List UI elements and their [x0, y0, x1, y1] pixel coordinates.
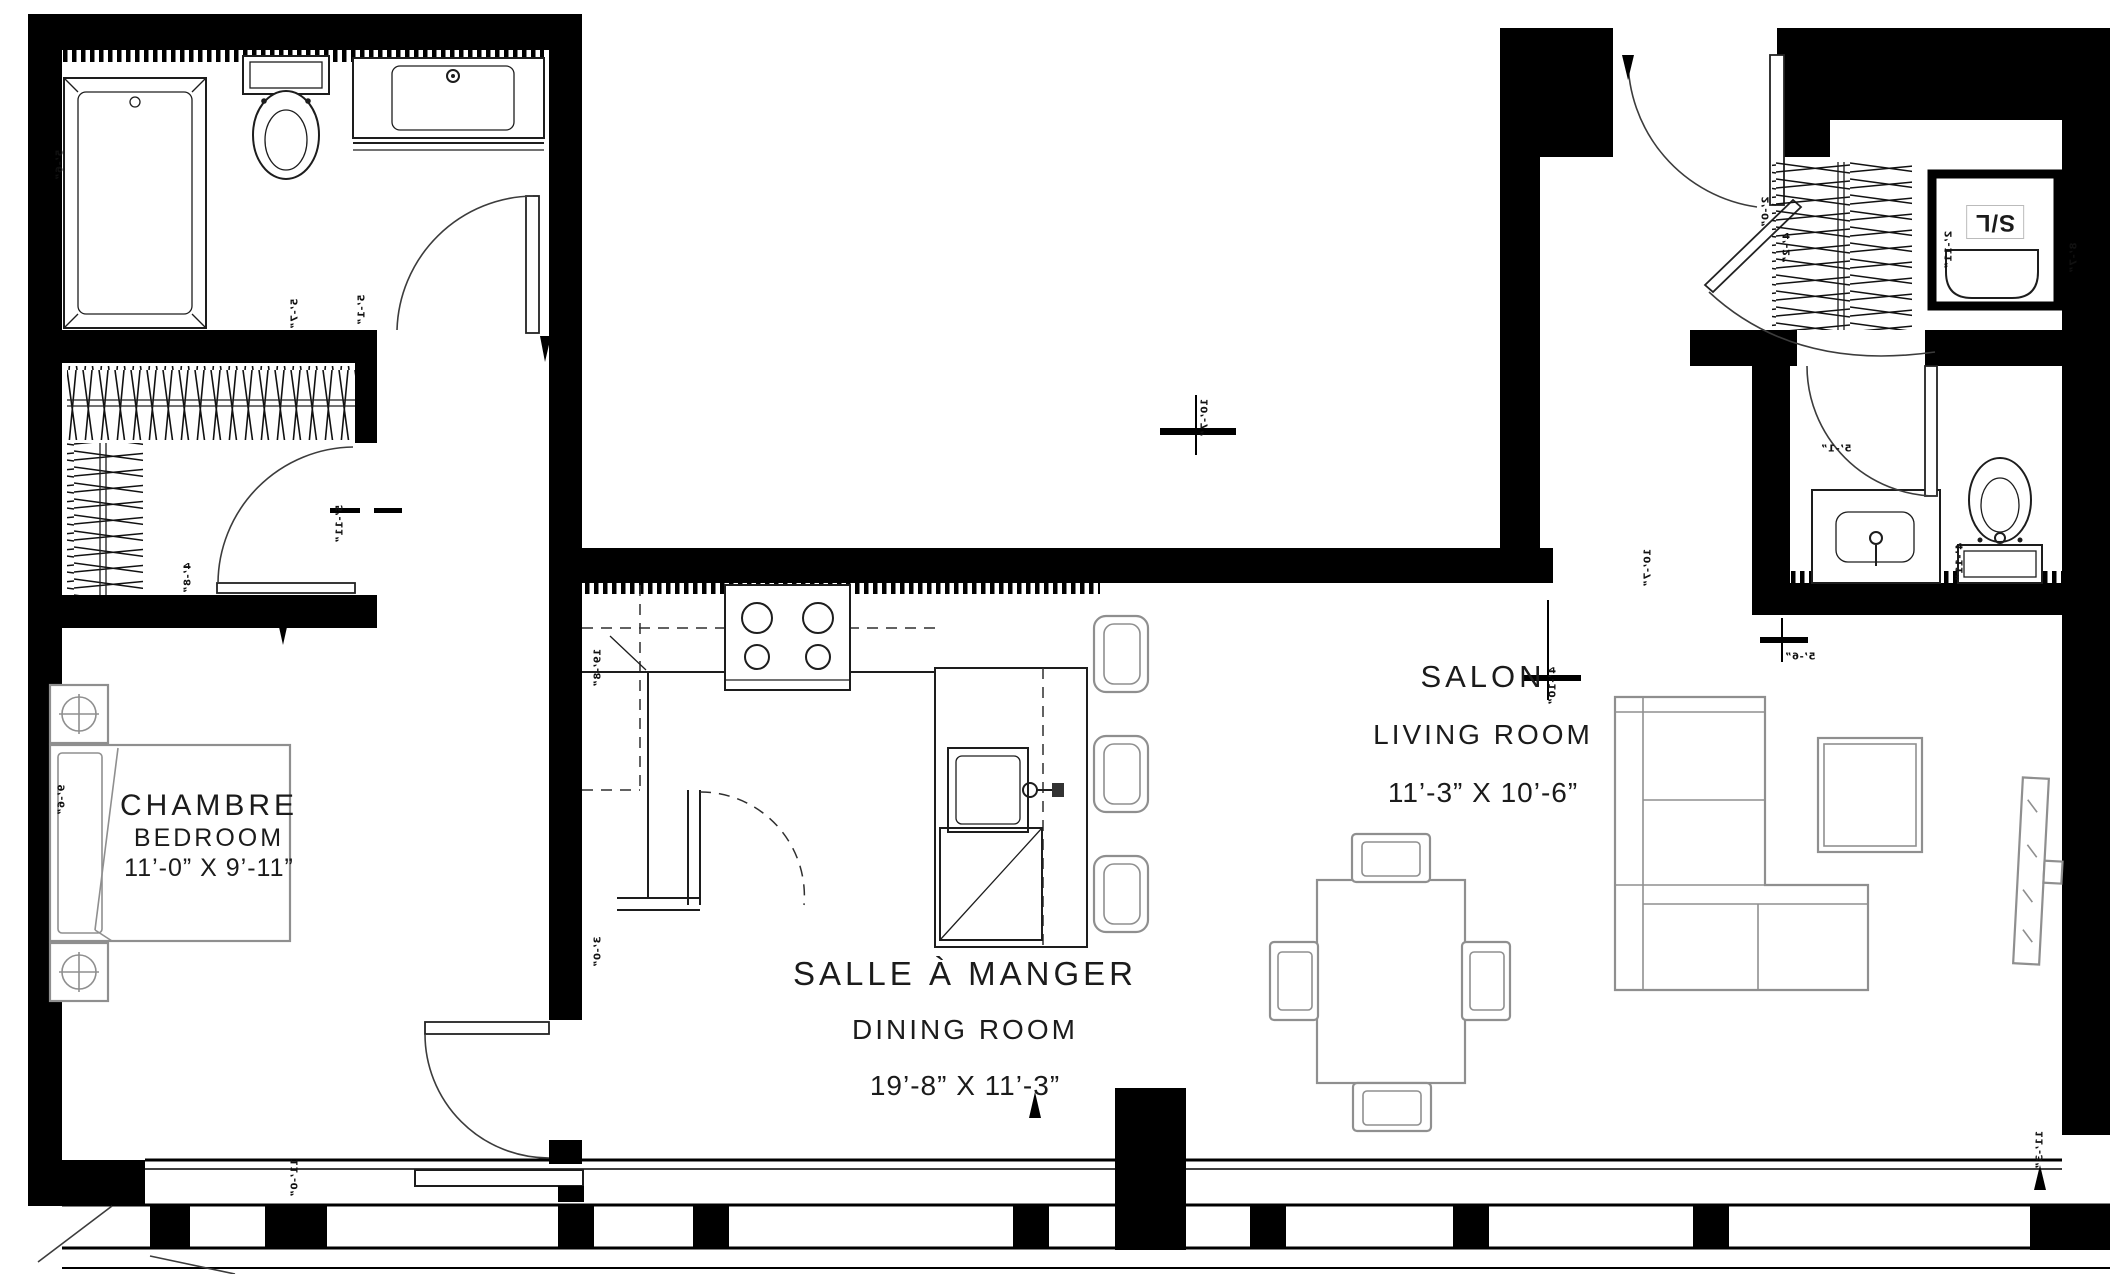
dining-set	[1270, 834, 1510, 1131]
window-wall	[38, 1160, 2110, 1274]
toilet	[1958, 458, 2042, 583]
hanger-hatch-side	[67, 443, 143, 595]
dimension-text: 11’-3”	[2035, 1131, 2046, 1169]
dimension-text: 10’-7”	[1200, 399, 1211, 437]
kitchen	[582, 583, 1148, 947]
bathroom-door	[397, 196, 539, 333]
room-label-living: SALON LIVING ROOM 11’-3” X 10’-6”	[1373, 648, 1593, 822]
dimension-text: 3’-0”	[593, 937, 604, 968]
nightstand	[50, 943, 108, 1001]
dimension-text: 4’-2”	[1782, 233, 1793, 264]
dimension-text: 5’-1”	[357, 295, 368, 326]
dimension-text: 8’-7”	[2069, 243, 2080, 274]
bedroom-furniture	[50, 685, 549, 1158]
dimension-text: 4’-8”	[183, 563, 194, 594]
dimension-text: 9’-6”	[57, 785, 68, 816]
floor-plan: CHAMBRE BEDROOM 11’-0” X 9’-11” SALLE À …	[0, 0, 2127, 1274]
room-name-en: LIVING ROOM	[1373, 706, 1593, 764]
dimension-text: 2’-0”	[1761, 197, 1772, 228]
door-clearance-arc	[700, 792, 804, 905]
dimension-text: 4’-11”	[1955, 543, 1966, 581]
laundry-label: S/L	[1966, 205, 2024, 239]
dimension-text: 4’-10”	[1548, 667, 1559, 705]
dimension-text: 5’-6”	[1785, 652, 1816, 663]
hanger-hatch	[1772, 162, 1912, 330]
hanger-hatch	[67, 366, 355, 440]
vanity-sink	[1812, 490, 1940, 583]
dimension-text: 5’-1”	[1821, 444, 1852, 455]
vanity-sink	[353, 58, 544, 150]
dimension-text: 5’-11”	[335, 505, 346, 543]
bedroom-door	[425, 1022, 549, 1158]
dining-chair	[1462, 942, 1510, 1020]
room-dimensions: 11’-0” X 9’-11”	[120, 853, 298, 883]
dining-chair	[1353, 1083, 1431, 1131]
room-label-dining: SALLE À MANGER DINING ROOM 19’-8” X 11’-…	[793, 946, 1137, 1114]
living-furniture	[1615, 697, 2067, 990]
coffee-table	[1818, 738, 1922, 852]
room-name-fr: SALLE À MANGER	[793, 946, 1137, 1002]
bathtub	[64, 78, 206, 328]
bathroom-door	[1807, 366, 1937, 496]
dimension-text: 2’-11”	[1944, 231, 1955, 269]
room-dimensions: 11’-3” X 10’-6”	[1373, 764, 1593, 822]
bar-stools	[1094, 616, 1148, 932]
bathroom-main	[62, 50, 544, 333]
dimension-text: 10’-7”	[1643, 549, 1654, 587]
window-mullions	[150, 1205, 1729, 1248]
room-dimensions: 19’-8” X 11’-3”	[793, 1058, 1137, 1114]
closet-right	[1772, 162, 1912, 330]
dimension-text: 19’-8”	[593, 649, 604, 687]
nightstand	[50, 685, 108, 743]
room-name-fr: CHAMBRE	[120, 789, 298, 823]
entry-door	[1628, 55, 1784, 207]
bathroom-second	[1790, 366, 2062, 583]
closet-left	[67, 366, 355, 595]
stove	[725, 585, 850, 690]
room-name-en: DINING ROOM	[793, 1002, 1137, 1058]
dimension-text: 5’-7”	[290, 299, 301, 330]
tv	[2013, 777, 2067, 965]
dimension-text: 11’-0”	[290, 1159, 301, 1197]
dimension-text: 5’-6”	[55, 150, 66, 181]
room-name-fr: SALON	[1373, 648, 1593, 706]
dining-chair	[1352, 834, 1430, 882]
toilet	[243, 56, 329, 179]
island	[935, 668, 1087, 947]
room-label-bedroom: CHAMBRE BEDROOM 11’-0” X 9’-11”	[120, 789, 298, 883]
dining-chair	[1270, 942, 1318, 1020]
dining-table	[1317, 880, 1465, 1083]
room-name-en: BEDROOM	[120, 823, 298, 853]
